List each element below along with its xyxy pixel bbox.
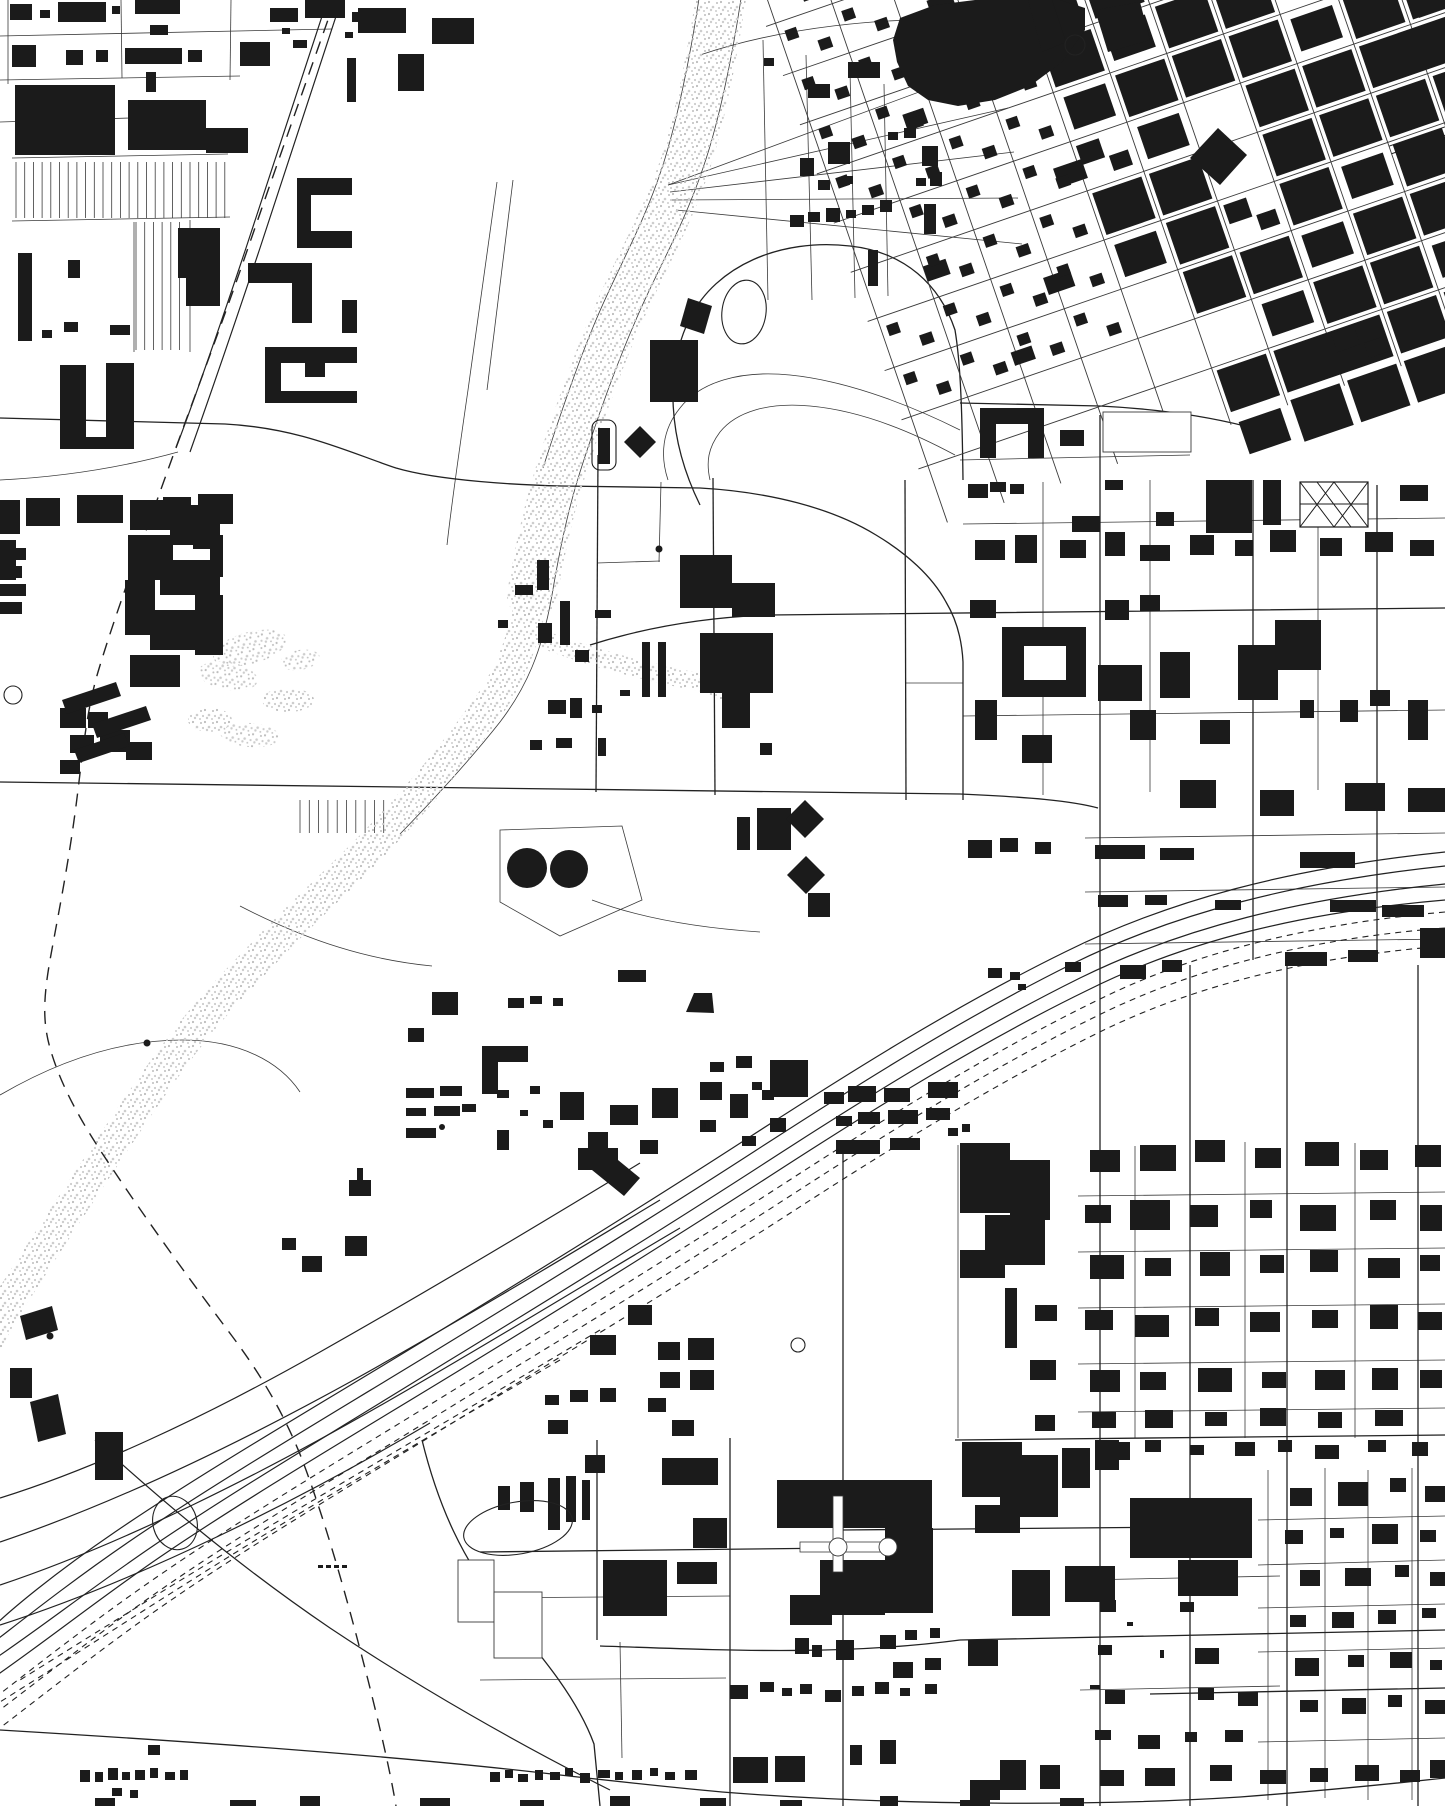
building [962, 1124, 970, 1132]
building [537, 560, 549, 590]
building [318, 1565, 323, 1568]
house [942, 213, 958, 228]
building [1012, 1570, 1050, 1616]
building [1127, 1622, 1133, 1626]
building [1370, 690, 1390, 706]
building [812, 1645, 822, 1657]
building [1156, 512, 1174, 526]
building [968, 1640, 998, 1666]
minor-road [0, 76, 240, 80]
downtown-building [1245, 69, 1308, 128]
building [1130, 710, 1156, 740]
building [700, 1120, 716, 1132]
minor-road [1085, 939, 1445, 944]
building [265, 347, 281, 403]
building [905, 1630, 917, 1640]
building [808, 84, 830, 98]
building [808, 893, 830, 917]
building [1198, 1688, 1214, 1700]
house [1032, 292, 1048, 307]
building [1420, 1205, 1442, 1231]
minor-road [1258, 1604, 1445, 1608]
major-road [673, 245, 963, 505]
storage-tank [550, 850, 588, 888]
building [112, 6, 120, 14]
building [282, 28, 290, 34]
building [1145, 1440, 1161, 1452]
downtown-building [1114, 231, 1167, 277]
building [1332, 1612, 1354, 1628]
building [775, 1756, 805, 1782]
building [1160, 652, 1190, 698]
building [960, 1143, 1010, 1213]
building [880, 1635, 896, 1649]
building [1180, 1602, 1194, 1612]
building [852, 1686, 864, 1696]
building [1295, 1658, 1319, 1676]
building [0, 584, 26, 596]
house [999, 283, 1014, 297]
building [565, 1768, 573, 1776]
downtown-blocks [766, 0, 1445, 558]
building [10, 1368, 32, 1398]
building [1225, 1730, 1243, 1742]
house [1106, 322, 1122, 337]
downtown-building [1172, 39, 1235, 98]
building [1342, 1698, 1366, 1714]
house [960, 351, 975, 365]
building [18, 253, 32, 341]
building [888, 1110, 918, 1124]
building [1000, 838, 1018, 852]
building [420, 1798, 450, 1806]
building [165, 1772, 175, 1780]
building-polygon [787, 856, 825, 894]
building [498, 1486, 510, 1510]
building [434, 1106, 460, 1116]
building [960, 1250, 1005, 1278]
building [1338, 1482, 1368, 1506]
building [1390, 1478, 1406, 1492]
building [357, 1168, 363, 1180]
building [1162, 960, 1182, 972]
building [556, 738, 572, 748]
building [515, 585, 533, 595]
building [1098, 665, 1142, 701]
building [60, 760, 80, 774]
roundabout-loop [791, 1338, 805, 1352]
building [677, 1562, 717, 1584]
minor-road [480, 1678, 726, 1680]
building [1420, 1370, 1442, 1388]
building [1018, 984, 1026, 990]
building [292, 263, 312, 323]
downtown-building [1262, 290, 1315, 336]
building [1185, 1732, 1197, 1742]
building [1260, 1255, 1284, 1273]
minor-road [592, 900, 760, 932]
building [1140, 1145, 1176, 1171]
building [620, 690, 630, 696]
building [658, 642, 666, 697]
building [64, 322, 78, 332]
building [843, 176, 853, 184]
building [1140, 1372, 1166, 1390]
building [1195, 1648, 1219, 1664]
building [548, 1478, 560, 1530]
building [77, 495, 123, 523]
house [818, 125, 833, 139]
building [928, 1082, 958, 1098]
building [1040, 1765, 1060, 1789]
downtown-building [1319, 98, 1382, 157]
building [1100, 1600, 1116, 1612]
building [345, 32, 353, 38]
building [730, 1685, 748, 1699]
building [688, 1338, 714, 1360]
building [1130, 1200, 1170, 1230]
building [975, 540, 1005, 560]
house [874, 17, 890, 32]
house [1005, 116, 1020, 130]
building [1300, 1205, 1336, 1231]
building [732, 583, 775, 617]
building [408, 1028, 424, 1042]
building [530, 996, 542, 1004]
building [150, 25, 168, 35]
building [1320, 538, 1342, 556]
building [1030, 1360, 1056, 1380]
minor-road [447, 182, 497, 545]
building [1095, 1730, 1111, 1740]
building [498, 620, 508, 628]
building [922, 146, 938, 166]
building [1420, 1255, 1440, 1271]
building [777, 1480, 932, 1528]
building [126, 742, 152, 760]
building [1260, 1408, 1286, 1426]
building [1372, 1368, 1398, 1390]
building [1138, 1735, 1160, 1749]
building-polygon [62, 682, 121, 714]
house [943, 302, 958, 316]
building [1060, 540, 1086, 558]
parcel-lot [1103, 412, 1191, 452]
house [801, 0, 817, 2]
house [868, 184, 884, 199]
building [650, 340, 698, 402]
building [1410, 540, 1434, 556]
minor-road [0, 452, 178, 480]
building [1190, 1445, 1204, 1455]
building [1095, 845, 1145, 859]
building [1238, 645, 1278, 700]
building [334, 1565, 339, 1568]
minor-road [1258, 1648, 1445, 1652]
building [1425, 1700, 1445, 1714]
building [848, 1086, 876, 1102]
building [598, 428, 610, 464]
building [505, 1770, 513, 1778]
building [848, 62, 880, 78]
house [1016, 243, 1032, 258]
building [1062, 1448, 1090, 1488]
major-road [955, 1435, 1445, 1440]
building [1415, 1145, 1441, 1167]
building [482, 1046, 528, 1062]
building [868, 250, 878, 286]
building [0, 548, 26, 560]
building [1105, 1690, 1125, 1704]
vegetation-blob [262, 688, 314, 712]
house [1016, 332, 1031, 346]
building [40, 10, 50, 18]
building [406, 1088, 434, 1098]
building [1190, 535, 1214, 555]
building [1160, 848, 1194, 860]
building [970, 1780, 1000, 1800]
downtown-building [1183, 255, 1246, 314]
building [188, 50, 202, 62]
building [738, 640, 762, 664]
building [1195, 1308, 1219, 1326]
building [530, 740, 542, 750]
building [598, 1770, 610, 1778]
building [1105, 600, 1129, 620]
building [342, 1565, 347, 1568]
house [983, 234, 998, 248]
building [1290, 1488, 1312, 1506]
house [851, 135, 867, 150]
building [846, 210, 856, 218]
building [1340, 700, 1358, 722]
building [742, 1136, 756, 1146]
storage-tank [507, 848, 547, 888]
rail-track [0, 928, 1445, 1716]
house [976, 312, 992, 327]
house [903, 371, 918, 385]
building [432, 18, 474, 44]
building [518, 1774, 528, 1782]
building [1400, 485, 1428, 501]
building [1348, 950, 1378, 962]
building [795, 1638, 809, 1654]
building [760, 1682, 774, 1692]
building [925, 1658, 941, 1670]
building [497, 1090, 509, 1098]
building [1065, 1566, 1115, 1602]
building [560, 601, 570, 645]
building-polygon [786, 800, 824, 838]
minor-road [1258, 1560, 1445, 1565]
building [1375, 1410, 1403, 1426]
building [1300, 1570, 1320, 1586]
minor-road [1078, 1248, 1445, 1252]
building-polygon [624, 426, 656, 458]
building [700, 1798, 726, 1806]
building [730, 1094, 748, 1118]
building [1330, 900, 1376, 912]
house [1049, 341, 1065, 356]
building [106, 363, 134, 445]
minor-road [1258, 1516, 1445, 1520]
building [60, 365, 86, 445]
downtown-building [1239, 408, 1292, 454]
building [1420, 1530, 1436, 1542]
downtown-building [1166, 206, 1229, 265]
building [1000, 1760, 1026, 1790]
building [1300, 700, 1314, 718]
building [880, 200, 892, 212]
building [110, 325, 130, 335]
house [909, 204, 924, 218]
building [1345, 1568, 1371, 1586]
building [1250, 1200, 1272, 1218]
building [349, 1180, 371, 1196]
building [66, 50, 83, 65]
building [862, 205, 874, 215]
parcel-lot [494, 1592, 542, 1658]
building [1098, 1645, 1112, 1655]
building [757, 808, 791, 850]
building [632, 1770, 642, 1780]
plant-driveway [833, 1496, 843, 1572]
building [970, 600, 996, 618]
building [1310, 1768, 1328, 1782]
building [590, 1335, 616, 1355]
tree-dot [439, 1124, 445, 1130]
building [432, 992, 458, 1015]
building [1160, 1650, 1164, 1658]
building [535, 1770, 543, 1780]
city-figure-ground-map [0, 0, 1445, 1806]
downtown-building [1063, 83, 1116, 129]
building [1425, 1486, 1445, 1502]
building [96, 50, 108, 62]
major-road [960, 1630, 1445, 1640]
building [836, 1640, 854, 1660]
building [988, 968, 1002, 978]
building [960, 1800, 990, 1806]
major-road [0, 782, 1098, 808]
building [925, 1684, 937, 1694]
building [195, 595, 223, 655]
building [658, 1342, 680, 1360]
building [836, 1116, 852, 1126]
house [841, 7, 856, 21]
building [15, 85, 115, 155]
plant-silo [879, 1538, 897, 1556]
building [782, 1688, 792, 1696]
building [1418, 1312, 1442, 1330]
building [660, 1372, 680, 1388]
building [890, 1138, 920, 1150]
building [300, 1796, 320, 1806]
tree-dot [47, 1333, 54, 1340]
building [1005, 1288, 1017, 1348]
building-polygon [578, 1148, 640, 1196]
building [148, 1745, 160, 1755]
building [1408, 788, 1445, 812]
building [60, 437, 134, 449]
building [1145, 895, 1167, 905]
building [1090, 1150, 1120, 1172]
building [916, 178, 926, 186]
building [575, 650, 589, 662]
building [640, 1140, 658, 1154]
downtown-building [1217, 354, 1280, 413]
building [880, 1740, 896, 1764]
building [790, 215, 804, 227]
building [1145, 1410, 1173, 1428]
building [1278, 1440, 1292, 1452]
building [1210, 1765, 1232, 1781]
minor-road [12, 217, 230, 221]
building [1285, 1530, 1303, 1544]
building [1035, 1305, 1057, 1321]
building [1330, 1528, 1344, 1538]
building [888, 132, 898, 140]
building [440, 1086, 462, 1096]
building [900, 1688, 910, 1696]
river-layer [0, 0, 736, 1340]
house [817, 36, 833, 51]
building [690, 1370, 714, 1390]
building [652, 1088, 678, 1118]
building [1382, 905, 1424, 917]
building [1368, 1440, 1386, 1452]
building [588, 1132, 608, 1148]
building [1105, 480, 1123, 490]
building-polygon [686, 993, 714, 1013]
downtown-building [1393, 128, 1445, 187]
building [281, 391, 357, 403]
building [968, 484, 988, 498]
major-road [600, 1640, 960, 1651]
building [1090, 1370, 1120, 1392]
building [1072, 516, 1100, 532]
building [710, 1062, 724, 1072]
downtown-building [1342, 0, 1405, 39]
building [180, 1770, 188, 1780]
downtown-district [746, 0, 1445, 564]
building [1430, 1760, 1445, 1778]
downtown-building [1115, 59, 1178, 118]
house [949, 135, 964, 149]
plant-silo [829, 1538, 847, 1556]
building [780, 1800, 802, 1806]
building [1035, 842, 1051, 854]
building [818, 180, 830, 190]
downtown-building [1341, 153, 1394, 199]
building [1105, 532, 1125, 556]
building [1305, 1142, 1339, 1166]
building [618, 970, 646, 982]
minor-road [1085, 833, 1445, 838]
building [975, 700, 997, 740]
building [125, 48, 182, 64]
house [1072, 223, 1088, 238]
downtown-building [1155, 0, 1218, 48]
building [598, 738, 606, 756]
building [1430, 1660, 1442, 1670]
building [520, 1482, 534, 1512]
house [1022, 165, 1037, 179]
building [178, 228, 220, 278]
building [1400, 1770, 1420, 1782]
building [305, 363, 325, 377]
building [1312, 1310, 1338, 1328]
